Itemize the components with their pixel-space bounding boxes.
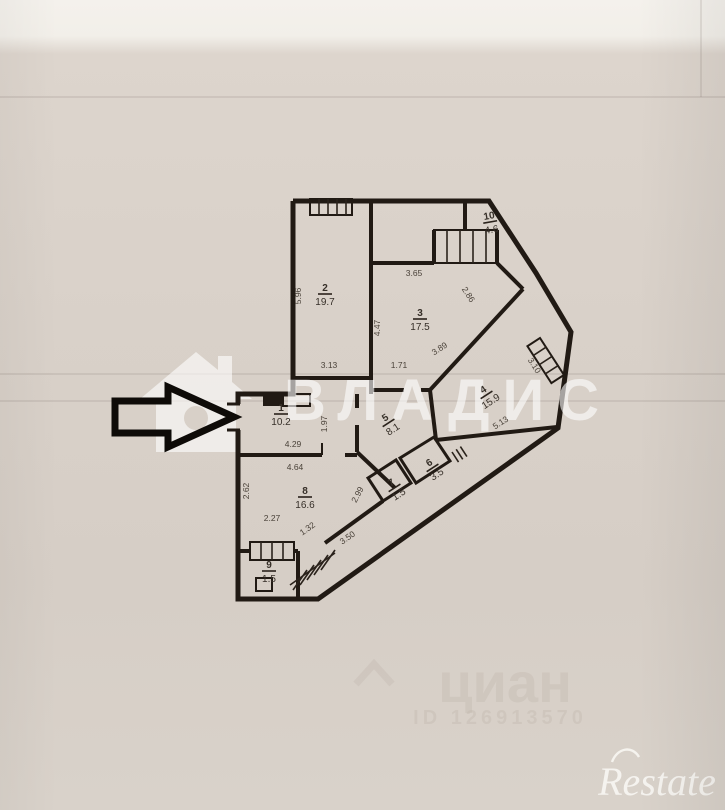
svg-text:2: 2 (322, 283, 328, 294)
dimension-label: 4.64 (287, 462, 304, 472)
dimension-label: 1.32 (298, 520, 318, 538)
room-label-9: 9 1.5 (262, 560, 276, 585)
door-hatch-room4 (452, 447, 467, 463)
cian-house-icon (356, 664, 392, 684)
dimension-label: 3.13 (321, 360, 338, 370)
svg-text:1: 1 (278, 403, 284, 414)
svg-text:9: 9 (266, 560, 272, 571)
room-label-3: 3 17.5 (410, 308, 430, 333)
dimension-label: 2.62 (241, 482, 251, 499)
dimension-label: 1.71 (391, 360, 408, 370)
svg-text:Restate: Restate (597, 759, 716, 804)
svg-text:10.2: 10.2 (271, 417, 291, 428)
dimension-label: 3.65 (406, 268, 423, 278)
floorplan-drawing: ВЛАДИС 2 19.7 3 17.5 10 4.6 4 15.9 1 10.… (0, 0, 725, 810)
svg-text:19.7: 19.7 (315, 297, 335, 308)
dimension-label: 2.27 (264, 513, 281, 523)
dimension-label: 1.97 (319, 415, 329, 432)
room-label-2: 2 19.7 (315, 283, 335, 308)
window-balcony9 (250, 542, 294, 560)
floorplan-scan: ВЛАДИС 2 19.7 3 17.5 10 4.6 4 15.9 1 10.… (0, 0, 725, 810)
svg-text:1.5: 1.5 (262, 574, 276, 585)
cian-watermark: циан ID 126913570 (356, 651, 587, 729)
dimension-label: 3.89 (430, 340, 450, 358)
dimension-label: 2.99 (349, 485, 366, 505)
dimension-label: 4.29 (285, 439, 302, 449)
svg-text:3: 3 (417, 308, 423, 319)
vladis-watermark: ВЛАДИС (284, 368, 612, 433)
dimension-label: 2.86 (460, 285, 478, 305)
svg-text:циан: циан (438, 651, 572, 714)
dimension-label: 4.47 (372, 319, 382, 336)
dimension-label: 5.96 (293, 287, 303, 304)
restate-watermark: Restate (597, 750, 716, 804)
room-label-8: 8 16.6 (295, 486, 315, 511)
svg-text:ID 126913570: ID 126913570 (413, 707, 587, 729)
svg-text:8: 8 (302, 486, 308, 497)
svg-text:16.6: 16.6 (295, 500, 315, 511)
svg-text:17.5: 17.5 (410, 322, 430, 333)
